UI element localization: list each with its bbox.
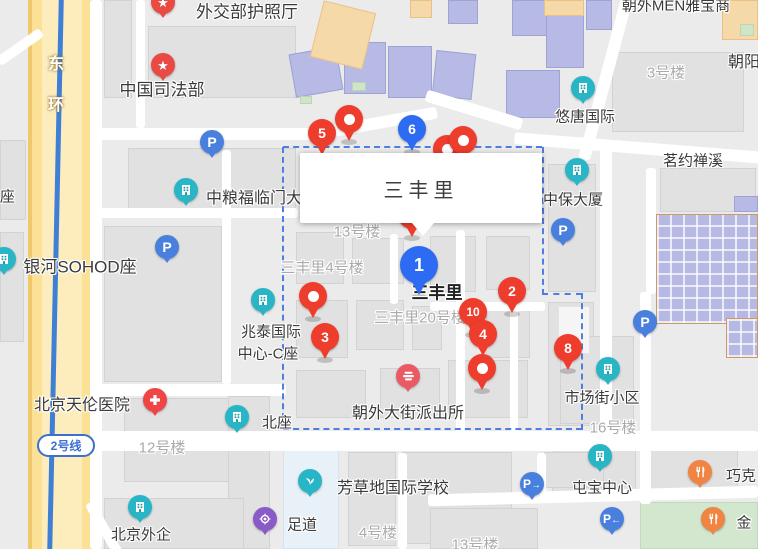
metro-line-badge: 2号线 [37, 434, 95, 457]
building-marker[interactable] [588, 444, 612, 468]
pin-head: 6 [398, 115, 426, 143]
building-marker[interactable] [251, 288, 275, 312]
poi-label: 中保大厦 [543, 189, 603, 210]
poi-label: 茗约禅溪 [663, 150, 723, 171]
police-badge-icon [402, 371, 415, 382]
parking-entrance-marker[interactable]: P→ [520, 472, 544, 496]
selection-boundary [542, 147, 544, 295]
police-marker[interactable] [396, 364, 420, 388]
building-icon [594, 450, 606, 462]
building-block [300, 96, 312, 104]
building-icon [180, 184, 192, 196]
poi-label: C座 [0, 186, 15, 207]
parking-icon: P [207, 135, 216, 149]
building-marker[interactable] [174, 178, 198, 202]
result-pin-dot[interactable] [468, 354, 496, 391]
street [136, 0, 145, 128]
result-pin-3[interactable]: 3 [311, 323, 339, 360]
district-label: 朝阳 [728, 48, 758, 72]
poi-label: 中心-C座 [238, 343, 299, 364]
building-icon [257, 294, 269, 306]
poi-label: 金 [736, 512, 751, 533]
building-block [544, 0, 584, 16]
wheel-icon [259, 513, 271, 525]
street [96, 431, 758, 451]
building-block [448, 0, 478, 24]
pin-head [468, 354, 496, 382]
pin-head: 2 [498, 277, 526, 305]
star-icon: ★ [157, 0, 169, 9]
building-block [388, 46, 432, 98]
poi-label: 巧克 [726, 465, 756, 486]
building-block [740, 24, 754, 36]
building-block [726, 318, 758, 358]
pin-head [299, 282, 327, 310]
street [390, 234, 398, 304]
sprout-icon [304, 475, 316, 487]
poi-label: 外交部护照厅 [196, 0, 298, 23]
poi-label: 市场街小区 [564, 387, 639, 408]
road-name-char: 东 [48, 50, 64, 74]
building-block [352, 82, 366, 91]
foot-massage-marker[interactable] [253, 507, 277, 531]
building-block [410, 0, 432, 18]
building-icon [602, 363, 614, 375]
parking-icon: P [162, 240, 171, 254]
star-icon: ★ [157, 59, 169, 72]
pin-head: 8 [554, 334, 582, 362]
building-icon [577, 82, 589, 94]
parking-arrow-left-icon: P← [603, 513, 621, 526]
parking-marker[interactable]: P [633, 310, 657, 334]
parking-icon: P [558, 223, 567, 237]
fork-knife-icon [695, 466, 706, 478]
info-window[interactable]: 三丰里 [300, 153, 542, 223]
building-label: 16号楼 [590, 417, 637, 438]
building-icon [571, 164, 583, 176]
building-block [656, 214, 758, 324]
pin-head: 1 [400, 246, 438, 284]
hospital-marker[interactable] [143, 388, 167, 412]
poi-label: 银河SOHOD座 [23, 253, 136, 278]
building-label: 3号楼 [647, 62, 685, 83]
result-pin-4[interactable]: 4 [469, 320, 497, 357]
result-pin-6[interactable]: 6 [398, 115, 426, 152]
fork-knife-icon [708, 513, 719, 525]
poi-label: 兆泰国际 [241, 321, 301, 342]
building-block [546, 10, 584, 68]
street [646, 168, 656, 294]
pin-hole [308, 291, 319, 302]
pin-hole [458, 135, 469, 146]
hospital-cross-icon [149, 394, 161, 406]
parking-icon: P [640, 315, 649, 329]
parking-arrow-right-icon: P→ [523, 478, 541, 491]
parking-marker[interactable]: P [200, 130, 224, 154]
star-marker[interactable]: ★ [151, 53, 175, 77]
pin-hole [344, 114, 355, 125]
pin-head: 3 [311, 323, 339, 351]
street [398, 453, 407, 549]
result-pin-8[interactable]: 8 [554, 334, 582, 371]
result-pin-5[interactable]: 5 [308, 119, 336, 156]
poi-label: 屯宝中心 [572, 477, 632, 498]
building-icon [134, 501, 146, 513]
info-window-title: 三丰里 [384, 174, 459, 203]
building-label: 13号楼 [452, 534, 499, 549]
building-marker[interactable] [565, 158, 589, 182]
building-marker[interactable] [128, 495, 152, 519]
building-label: 三丰里4号楼 [280, 257, 363, 278]
parking-marker[interactable]: P [551, 218, 575, 242]
building-block [0, 140, 26, 220]
parking-entrance-marker[interactable]: P← [600, 507, 624, 531]
parking-marker[interactable]: P [155, 235, 179, 259]
street [510, 302, 518, 436]
building-block [734, 196, 758, 212]
result-pin-2[interactable]: 2 [498, 277, 526, 314]
restaurant-marker[interactable] [701, 507, 725, 531]
poi-label: 北京天伦医院 [34, 391, 130, 415]
building-block [506, 70, 560, 118]
building-icon [231, 411, 243, 423]
result-pin-1[interactable]: 1 [400, 246, 438, 297]
building-label: 12号楼 [139, 437, 186, 458]
building-icon [0, 253, 10, 265]
school-marker[interactable] [298, 469, 322, 493]
building-marker[interactable] [571, 76, 595, 100]
pin-hole [477, 363, 488, 374]
pin-head [449, 126, 477, 154]
star-marker[interactable]: ★ [151, 0, 175, 14]
restaurant-marker[interactable] [688, 460, 712, 484]
result-pin-dot[interactable] [299, 282, 327, 319]
street [96, 208, 298, 218]
result-pin-dot[interactable] [335, 105, 363, 142]
pin-head: 4 [469, 320, 497, 348]
building-marker[interactable] [596, 357, 620, 381]
pin-head: 5 [308, 119, 336, 147]
map-canvas[interactable]: 外交部护照厅中国司法部朝外MEN雅宝商朝阳悠唐国际茗约禅溪中保大厦中粮福临门大厦… [0, 0, 758, 549]
building-label: 三丰里20号楼 [374, 307, 466, 328]
pin-head [335, 105, 363, 133]
building-label: 4号楼 [359, 522, 397, 543]
building-block [586, 0, 612, 30]
poi-label: 朝外MEN雅宝商 [622, 0, 730, 16]
selection-boundary [542, 293, 582, 295]
road-name-char: 环 [48, 91, 64, 115]
poi-label: 北座 [262, 412, 292, 433]
building-label: 13号楼 [334, 221, 381, 242]
poi-label: 芳草地国际学校 [337, 474, 449, 498]
poi-label: 朝外大街派出所 [352, 399, 464, 423]
building-marker[interactable] [225, 405, 249, 429]
selection-boundary [283, 428, 582, 430]
poi-label: 足道 [287, 514, 317, 535]
